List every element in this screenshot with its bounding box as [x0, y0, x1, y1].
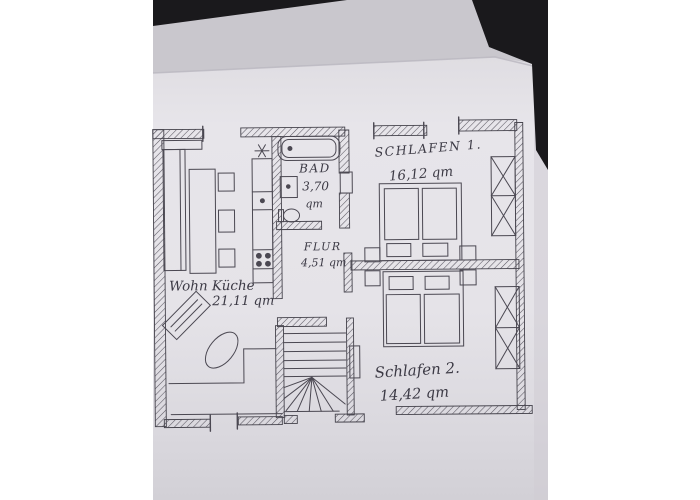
room-area-bad-unit: qm	[305, 197, 323, 210]
wall-bottom-left-a	[164, 419, 210, 427]
kitchen-sink	[260, 199, 264, 203]
wall-top-schlafen1-a	[374, 125, 427, 135]
floorplan-photo-svg: SCHLAFEN 1. 16,12 qm BAD 3,70 qm FLUR 4,…	[0, 0, 700, 500]
room-label-bad: BAD	[298, 161, 331, 175]
room-area-wohnkueche: 21,11 qm	[211, 294, 274, 310]
wall-bottom-left-d	[335, 414, 364, 422]
wall-stairs-left	[275, 326, 284, 418]
wall-bottom-schlafen2	[396, 405, 532, 414]
room-area-bad-value: 3,70	[302, 179, 329, 193]
wall-top-kitchen	[153, 129, 204, 138]
wall-bottom-left-b	[238, 417, 282, 425]
wall-top-bath	[241, 127, 345, 137]
room-area-flur: 4,51 qm	[300, 256, 347, 269]
wall-left	[153, 130, 167, 427]
wall-bad-bottom	[277, 221, 322, 229]
room-label-wohnkueche: Wohn Küche	[169, 278, 255, 295]
wall-stairs-top	[277, 317, 326, 326]
wall-middle	[351, 260, 519, 270]
wall-top-schlafen1-b	[459, 120, 517, 132]
floorplan-photo: SCHLAFEN 1. 16,12 qm BAD 3,70 qm FLUR 4,…	[0, 0, 700, 500]
wall-bottom-left-c	[284, 415, 297, 423]
room-label-flur: FLUR	[303, 240, 342, 253]
paper-sheet	[153, 0, 548, 500]
wall-bath-right-low	[339, 193, 349, 228]
